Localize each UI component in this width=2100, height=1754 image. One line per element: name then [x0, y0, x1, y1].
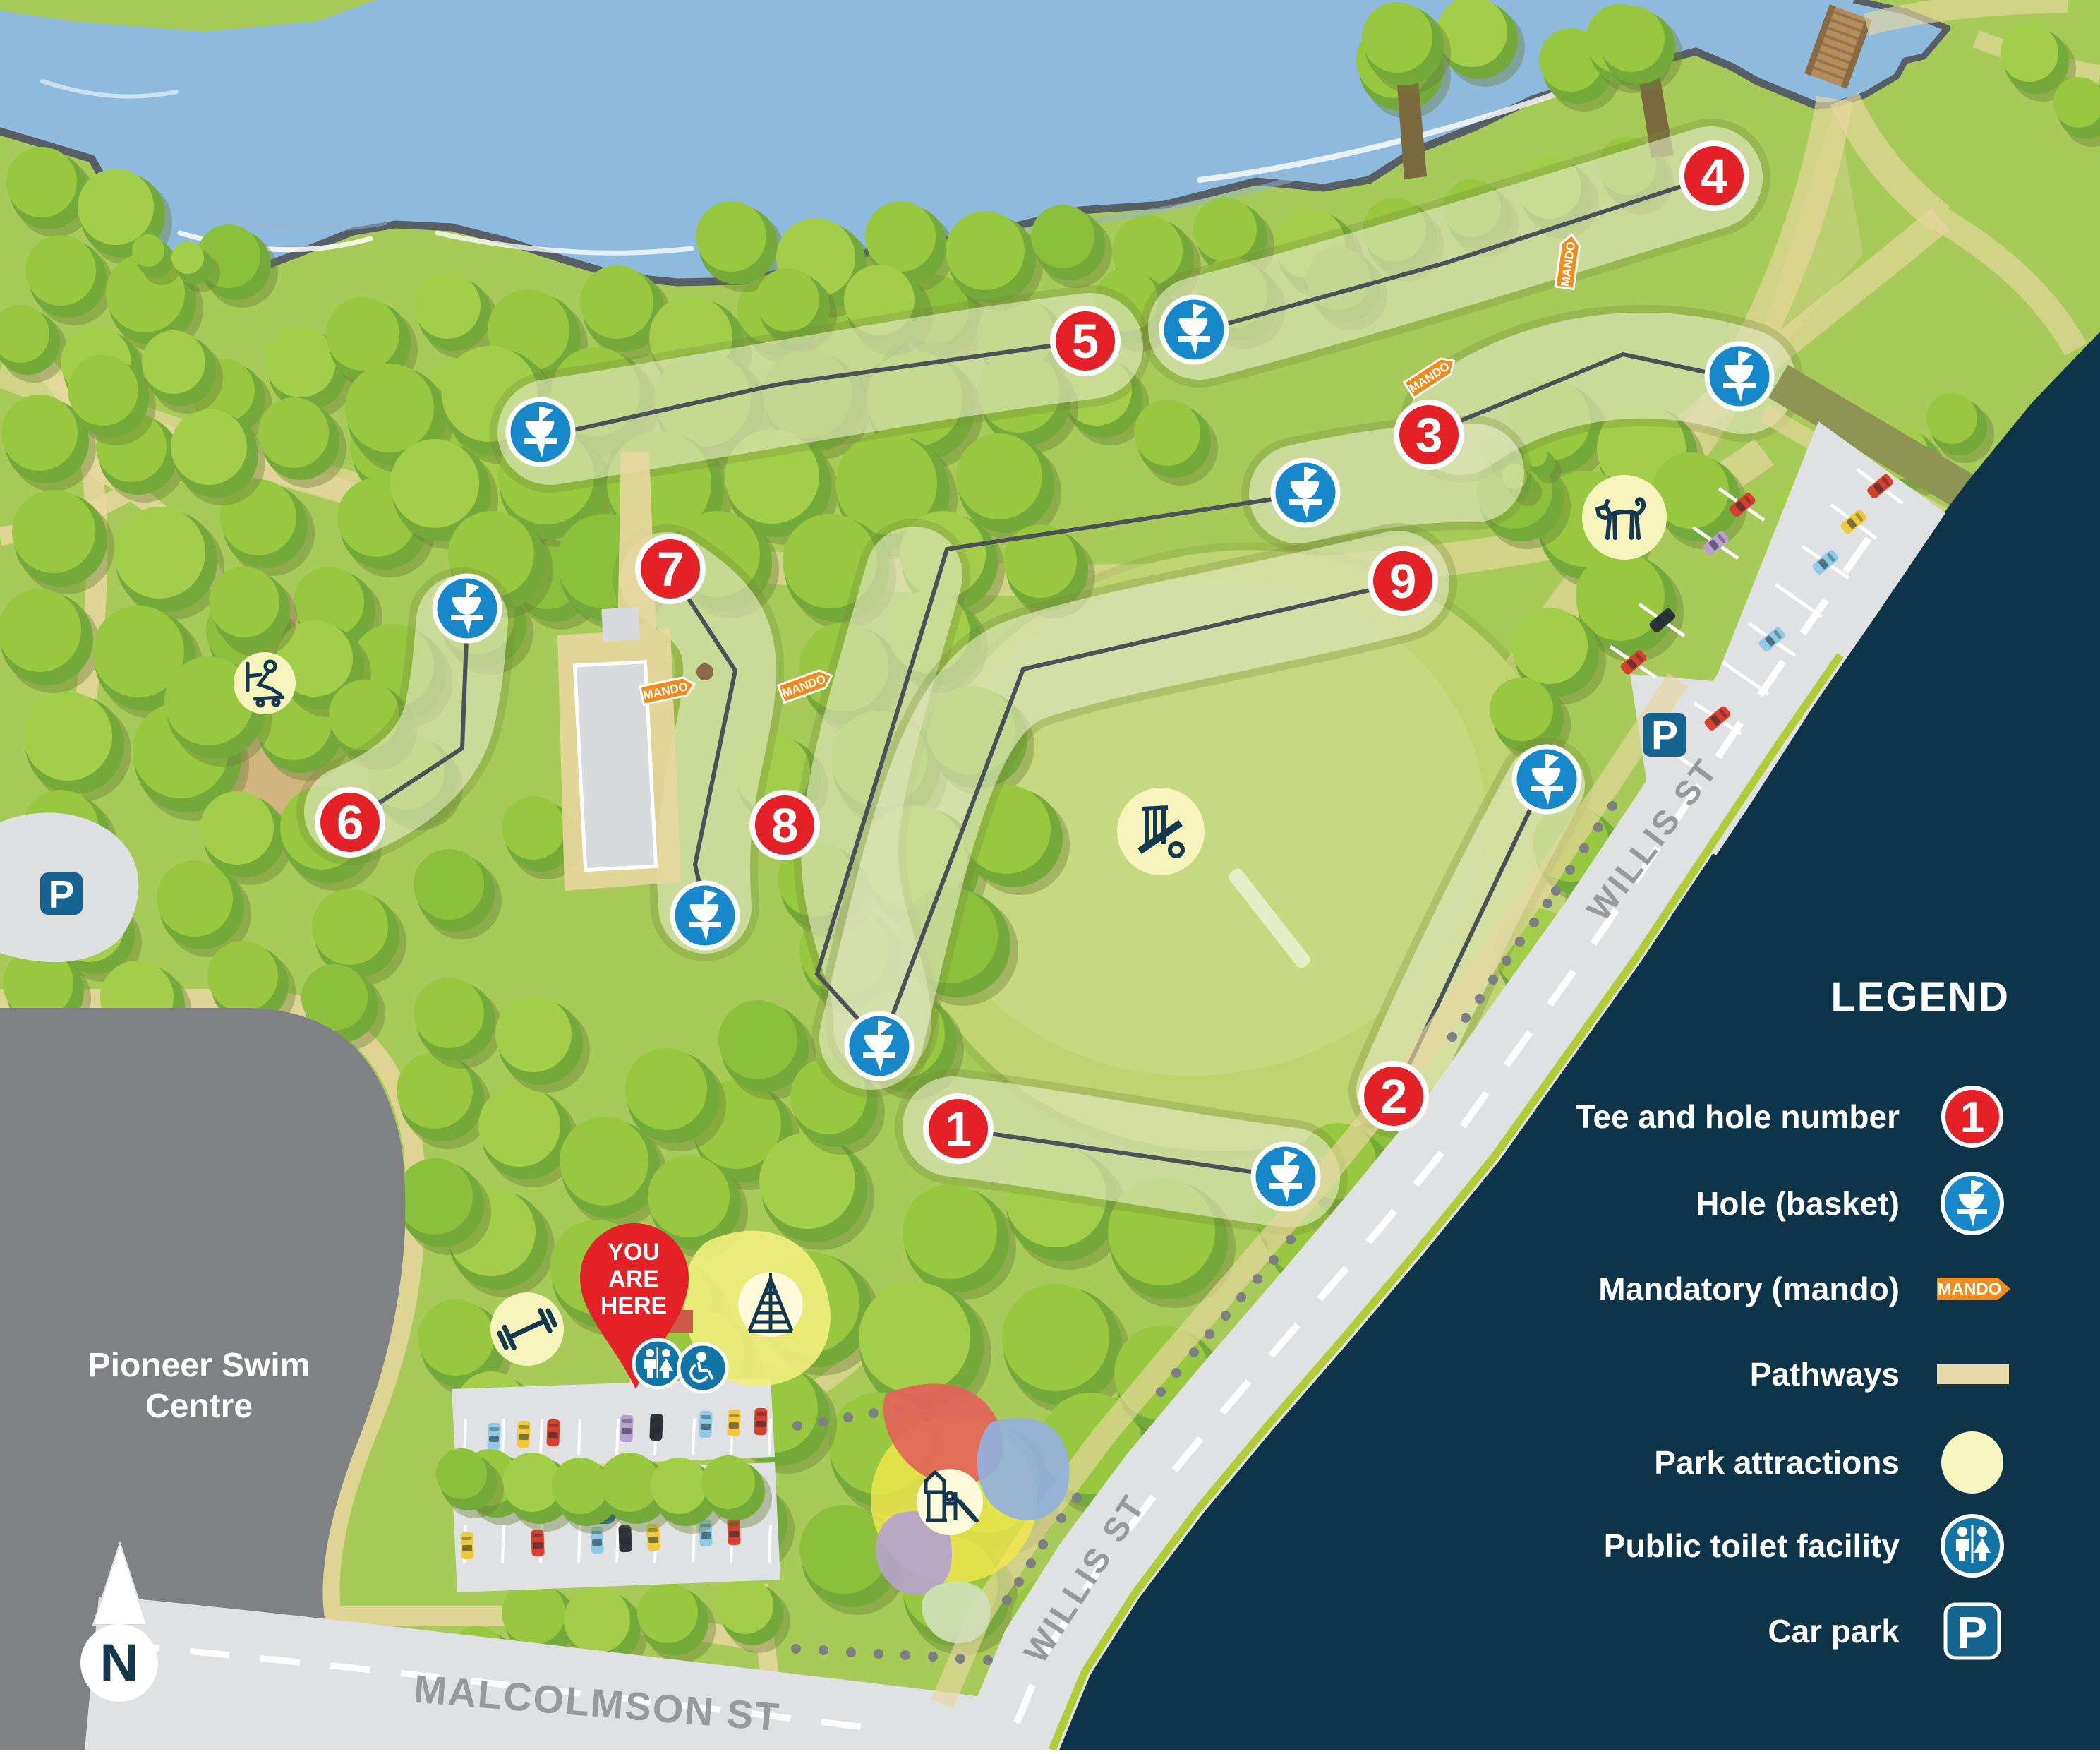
- svg-text:5: 5: [1072, 314, 1099, 368]
- svg-text:HERE: HERE: [601, 1292, 667, 1319]
- svg-text:Park attractions: Park attractions: [1654, 1444, 1900, 1481]
- svg-text:Car park: Car park: [1768, 1613, 1900, 1650]
- svg-text:ARE: ARE: [608, 1266, 659, 1292]
- svg-text:4: 4: [1701, 149, 1727, 203]
- svg-text:P: P: [1957, 1607, 1988, 1658]
- svg-text:9: 9: [1389, 554, 1416, 608]
- svg-text:7: 7: [657, 542, 684, 596]
- svg-text:N: N: [100, 1633, 139, 1693]
- svg-text:1: 1: [945, 1102, 972, 1156]
- svg-text:6: 6: [337, 795, 363, 850]
- svg-text:8: 8: [771, 798, 798, 853]
- svg-text:Pathways: Pathways: [1750, 1356, 1900, 1393]
- svg-text:Hole (basket): Hole (basket): [1696, 1185, 1900, 1222]
- svg-text:3: 3: [1416, 408, 1442, 462]
- svg-text:Pioneer Swim: Pioneer Swim: [88, 1347, 310, 1384]
- svg-text:P: P: [49, 872, 75, 916]
- svg-text:YOU: YOU: [608, 1239, 660, 1266]
- svg-text:Public toilet facility: Public toilet facility: [1604, 1527, 1900, 1564]
- svg-text:2: 2: [1380, 1069, 1407, 1124]
- svg-text:Tee and hole number: Tee and hole number: [1576, 1098, 1900, 1135]
- svg-text:LEGEND: LEGEND: [1830, 974, 2010, 1020]
- svg-text:Centre: Centre: [145, 1388, 253, 1425]
- svg-text:1: 1: [1960, 1093, 1984, 1142]
- svg-text:P: P: [1651, 713, 1678, 758]
- svg-text:Mandatory (mando): Mandatory (mando): [1598, 1271, 1900, 1307]
- svg-text:MANDO: MANDO: [1938, 1280, 2002, 1299]
